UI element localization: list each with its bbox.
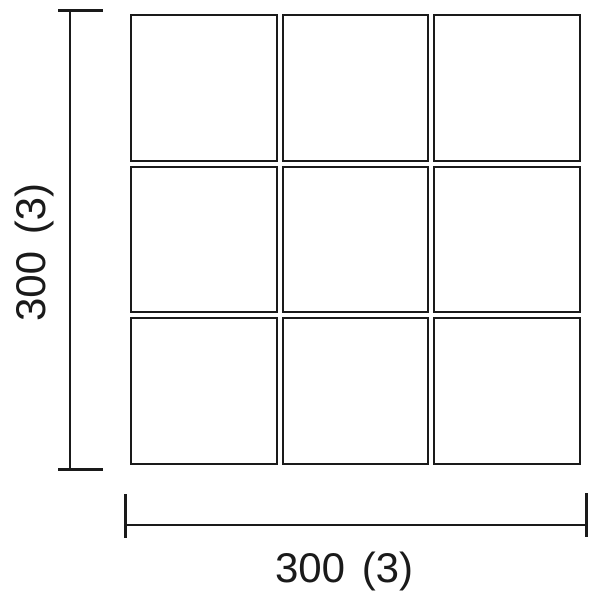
vertical-dimension-line xyxy=(69,10,71,470)
horizontal-dimension-tick-right xyxy=(585,493,588,537)
grid-cell xyxy=(282,166,430,314)
horizontal-dimension-label: 300 (3) xyxy=(244,545,444,591)
panel-grid xyxy=(130,14,581,465)
grid-cell xyxy=(282,317,430,465)
vertical-dimension-label: 300 (3) xyxy=(9,152,53,352)
vertical-dimension-tick-top xyxy=(58,9,103,12)
diagram-canvas: 300 (3) 300 (3) xyxy=(0,0,600,600)
grid-cell xyxy=(282,14,430,162)
grid-cell xyxy=(433,317,581,465)
vertical-dimension-tick-bottom xyxy=(58,468,103,471)
grid-cell xyxy=(433,166,581,314)
horizontal-dimension-tick-left xyxy=(124,494,127,538)
grid-cell xyxy=(433,14,581,162)
grid-cell xyxy=(130,166,278,314)
horizontal-dimension-line xyxy=(125,524,587,526)
grid-cell xyxy=(130,317,278,465)
grid-cell xyxy=(130,14,278,162)
